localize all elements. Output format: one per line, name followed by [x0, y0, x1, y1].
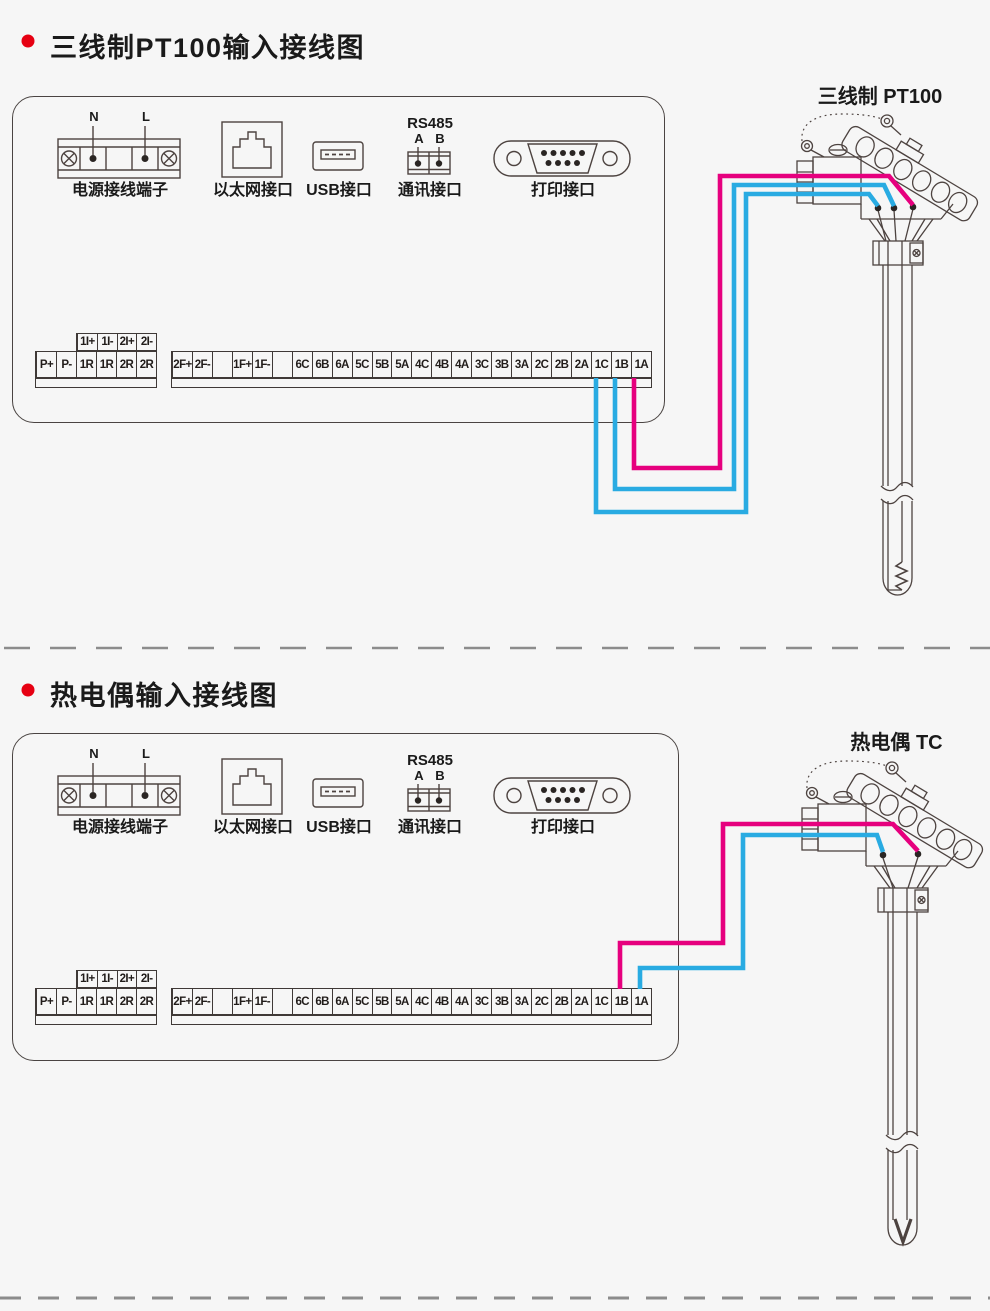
probe-label-tc: 热电偶 TC [824, 726, 969, 755]
rs485-label: RS485 [390, 116, 470, 132]
terminal-cell: 4B [431, 989, 451, 1014]
terminal-cell: 1A [631, 989, 651, 1014]
terminal-cell [272, 352, 292, 377]
terminal-cell: 6C [292, 352, 312, 377]
terminal-cell: 4A [451, 352, 471, 377]
terminal-cell: 2R [116, 352, 136, 377]
power-pin-n-label: N [84, 746, 104, 761]
terminal-cell: 2F- [192, 352, 212, 377]
rs485-pin-b-label: B [430, 131, 450, 146]
terminal-cell: 2C [531, 989, 551, 1014]
element-lead [888, 501, 902, 590]
power-pin-n-label: N [84, 109, 104, 124]
rs485-pin-b-label: B [430, 768, 450, 783]
terminal-cell: 2I- [136, 971, 156, 987]
comm-port-label: 通讯接口 [360, 819, 500, 837]
head-terminal [880, 852, 887, 859]
terminal-cell: 6A [332, 989, 352, 1014]
head-terminal [910, 204, 917, 211]
probe-stem [888, 888, 917, 1135]
terminal-cell: 1F- [252, 989, 272, 1014]
terminal-cell: 1R [76, 352, 96, 377]
terminal-strip-left: P+P-1R1R2R2R [35, 351, 157, 378]
terminal-cell [212, 989, 232, 1014]
terminal-cell: 1F- [252, 352, 272, 377]
terminal-cell: 6C [292, 989, 312, 1014]
rtd-element-icon [896, 562, 907, 590]
stem-break-mark [881, 483, 913, 504]
probe-tip-tube [888, 1150, 917, 1245]
terminal-strip-left-base [35, 1015, 157, 1025]
terminal-cell: 2F+ [172, 352, 192, 377]
terminal-cell: 2I- [136, 334, 156, 350]
terminal-cell: 1B [611, 352, 631, 377]
terminal-cell: 1F+ [232, 352, 252, 377]
probe-leads [883, 857, 918, 888]
power-terminal-label: 电源接线端子 [50, 182, 190, 200]
terminal-cell: 2R [116, 989, 136, 1014]
print-port-label: 打印接口 [493, 182, 633, 200]
terminal-strip-left-base [35, 378, 157, 388]
terminal-strip-main-base [171, 1015, 652, 1025]
terminal-cell: 1I- [97, 971, 117, 987]
power-terminal-label: 电源接线端子 [50, 819, 190, 837]
wire-1a-magenta [634, 176, 913, 468]
terminal-cell: 5B [372, 989, 392, 1014]
stem-break-mark [886, 1132, 918, 1153]
recorder-rear-panel-tc: N L 电源接线端子 以太网接口 USB接口 RS485 A B 通讯接口 打印… [12, 733, 679, 1061]
terminal-cell: 2B [551, 989, 571, 1014]
terminal-cell: 3A [511, 989, 531, 1014]
terminal-cell: 1I+ [77, 334, 97, 350]
terminal-strip-main-base [171, 378, 652, 388]
power-pin-l-label: L [136, 746, 156, 761]
terminal-cell: 2B [551, 352, 571, 377]
probe-tip-tube [883, 501, 912, 595]
terminal-cell: 5A [391, 989, 411, 1014]
head-terminal [875, 205, 882, 212]
terminal-cell: P+ [36, 989, 56, 1014]
wiring-diagram-page: 三线制PT100输入接线图 热电偶输入接线图 三线制 PT100 热电偶 TC … [0, 0, 990, 1311]
print-port-label: 打印接口 [493, 819, 633, 837]
terminal-cell: 1B [611, 989, 631, 1014]
terminal-cell: 3B [491, 989, 511, 1014]
terminal-strip-current: 1I+1I-2I+2I- [76, 333, 157, 351]
comm-port-label: 通讯接口 [360, 182, 500, 200]
terminal-cell: 2A [571, 989, 591, 1014]
terminal-cell [272, 989, 292, 1014]
probe-label-pt100: 三线制 PT100 [800, 80, 960, 109]
terminal-cell: 3C [471, 352, 491, 377]
rs485-label: RS485 [390, 753, 470, 769]
pt100-probe [797, 109, 989, 595]
terminal-strip-main: 2F+2F-1F+1F-6C6B6A5C5B5A4C4B4A3C3B3A2C2B… [171, 351, 652, 378]
terminal-cell: 2I+ [117, 334, 137, 350]
terminal-strip-current: 1I+1I-2I+2I- [76, 970, 157, 988]
terminal-cell [212, 352, 232, 377]
terminal-cell: 2F+ [172, 989, 192, 1014]
terminal-cell: 4B [431, 352, 451, 377]
probe-leads [878, 209, 913, 241]
terminal-strip-left: P+P-1R1R2R2R [35, 988, 157, 1015]
terminal-cell: 1C [591, 352, 611, 377]
terminal-cell: 1F+ [232, 989, 252, 1014]
terminal-cell: 4C [411, 989, 431, 1014]
section-title-pt100: 三线制PT100输入接线图 [50, 26, 365, 65]
terminal-cell: 1A [631, 352, 651, 377]
terminal-strip-main: 2F+2F-1F+1F-6C6B6A5C5B5A4C4B4A3C3B3A2C2B… [171, 988, 652, 1015]
terminal-cell: 5C [352, 352, 372, 377]
section-title-tc: 热电偶输入接线图 [50, 674, 278, 713]
element-lead [893, 1150, 907, 1220]
terminal-cell: 1I+ [77, 971, 97, 987]
tc-probe [802, 756, 990, 1245]
terminal-cell: P- [56, 989, 76, 1014]
terminal-cell: 6B [312, 989, 332, 1014]
terminal-cell: 4A [451, 989, 471, 1014]
terminal-cell: 2I+ [117, 971, 137, 987]
terminal-cell: 2A [571, 352, 591, 377]
rs485-pin-a-label: A [409, 768, 429, 783]
terminal-cell: P- [56, 352, 76, 377]
terminal-cell: 1C [591, 989, 611, 1014]
terminal-cell: 5B [372, 352, 392, 377]
rs485-pin-a-label: A [409, 131, 429, 146]
bullet-icon [22, 684, 35, 697]
power-pin-l-label: L [136, 109, 156, 124]
terminal-cell: 4C [411, 352, 431, 377]
terminal-cell: 3A [511, 352, 531, 377]
terminal-cell: 6A [332, 352, 352, 377]
terminal-cell: 3B [491, 352, 511, 377]
terminal-cell: 3C [471, 989, 491, 1014]
terminal-cell: 1R [96, 352, 116, 377]
terminal-cell: 2F- [192, 989, 212, 1014]
terminal-cell: 6B [312, 352, 332, 377]
terminal-cell: 1I- [97, 334, 117, 350]
terminal-cell: 2R [136, 352, 156, 377]
bullet-icon [22, 35, 35, 48]
probe-stem [883, 241, 912, 486]
terminal-cell: 2C [531, 352, 551, 377]
terminal-cell: 5C [352, 989, 372, 1014]
terminal-cell: 5A [391, 352, 411, 377]
recorder-rear-panel-pt100: N L 电源接线端子 以太网接口 USB接口 RS485 A B 通讯接口 打印… [12, 96, 665, 423]
terminal-cell: 2R [136, 989, 156, 1014]
terminal-cell: 1R [96, 989, 116, 1014]
head-terminal [891, 205, 898, 212]
tc-junction-icon [895, 1219, 911, 1242]
terminal-cell: 1R [76, 989, 96, 1014]
terminal-cell: P+ [36, 352, 56, 377]
head-terminal [915, 851, 922, 858]
